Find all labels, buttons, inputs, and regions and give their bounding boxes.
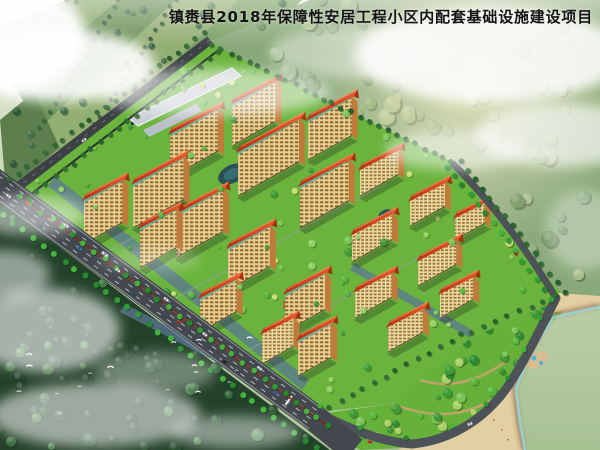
aerial-scene bbox=[0, 0, 600, 450]
architectural-rendering: 镇赉县2018年保障性安居工程小区内配套基础设施建设项目 bbox=[0, 0, 600, 450]
project-title: 镇赉县2018年保障性安居工程小区内配套基础设施建设项目 bbox=[169, 6, 593, 27]
